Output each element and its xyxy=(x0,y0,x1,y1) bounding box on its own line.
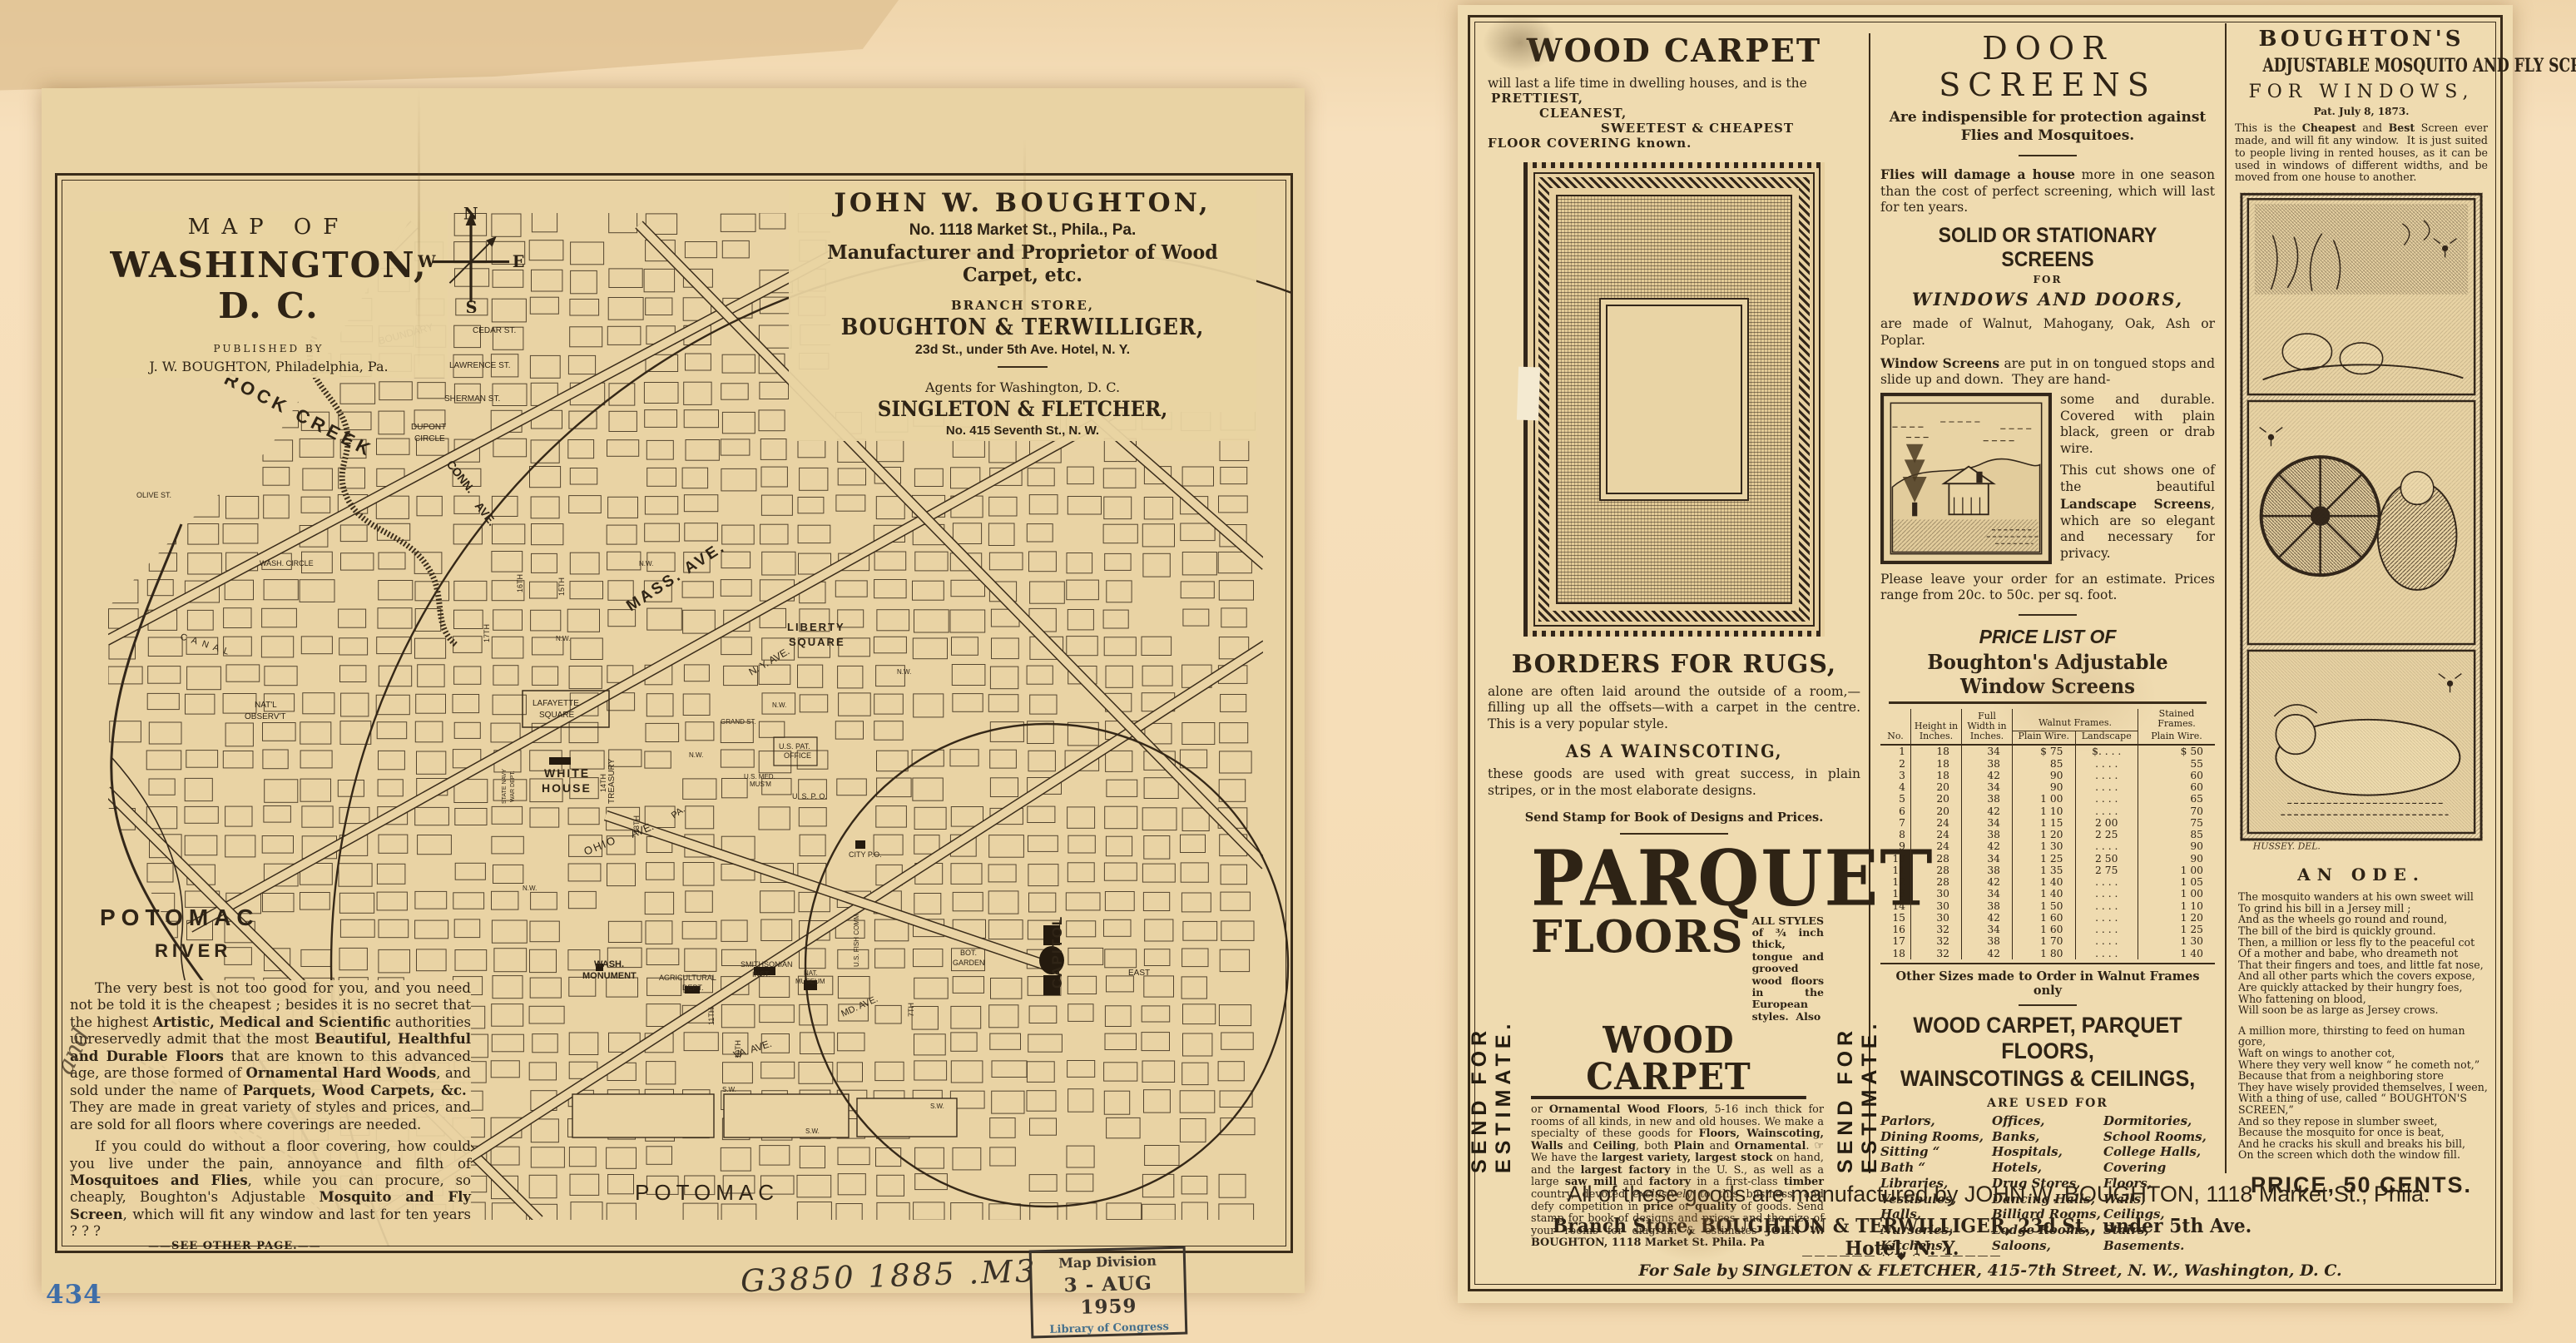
used-for-item: Banks, xyxy=(1992,1129,2103,1145)
library-stamp: Map Division 3 - AUG 1959 Library of Con… xyxy=(1029,1246,1188,1339)
window-screens-paragraph: Window Screens are put in on tongued sto… xyxy=(1880,355,2215,389)
send-for-estimate-left: SEND FOR ESTIMATE. xyxy=(1468,864,1516,1173)
price-table-cell: 2 xyxy=(1880,758,1911,770)
map-title-city: WASHINGTON, D. C. xyxy=(90,245,448,326)
compass-s: S xyxy=(466,298,478,313)
price-table-cell: 1 00 xyxy=(2138,888,2216,899)
published-by-label: PUBLISHED BY xyxy=(90,343,448,354)
advert-paragraph-1: The very best is not too good for you, a… xyxy=(70,980,471,1133)
used-for-item: School Rooms, xyxy=(2103,1129,2215,1145)
stamp-date: 3 - AUG 1959 xyxy=(1032,1271,1184,1321)
price-table-cell: 1 60 xyxy=(2013,912,2076,924)
price-table-cell: 1 20 xyxy=(2138,912,2216,924)
advert-paragraph-2: If you could do without a floor covering… xyxy=(70,1138,471,1241)
price-table-cell: 38 xyxy=(1962,758,2013,770)
price-table-cell: 1 30 xyxy=(2138,935,2216,947)
handsome-durable-text: some and durable. Covered with plain bla… xyxy=(2060,392,2215,458)
price-table-cell: . . . . xyxy=(2075,781,2138,793)
map-label: POTOMAC xyxy=(100,904,260,930)
price-table-cell: 38 xyxy=(1962,935,2013,947)
price-table-cell: 90 xyxy=(2138,840,2216,852)
map-label: S.W. xyxy=(805,1127,820,1135)
advert-paragraphs: The very best is not too good for you, a… xyxy=(70,980,471,1246)
see-other-page-note: ——SEE OTHER PAGE.—— xyxy=(148,1240,321,1252)
used-for-item: Bath “ xyxy=(1880,1160,1992,1176)
ode-line: A million more, thirsting to feed on hum… xyxy=(2238,1025,2488,1048)
price-table-cell: 60 xyxy=(2138,781,2216,793)
used-heading-2: WAINSCOTINGS & CEILINGS, xyxy=(1892,1066,2203,1092)
price-table-cell: . . . . xyxy=(2075,935,2138,947)
price-table-cell: 10 xyxy=(1880,853,1911,865)
map-label: OBSERV'T xyxy=(245,712,286,721)
used-for-item: Dormitories, xyxy=(2103,1113,2215,1129)
map-label: N.W. xyxy=(689,751,703,759)
landscape-screen-text: some and durable. Covered with plain bla… xyxy=(2060,392,2215,565)
wainscoting-heading: AS A WAINSCOTING, xyxy=(1503,741,1845,761)
map-label: 17TH xyxy=(483,624,491,642)
map-label: N.W. xyxy=(897,668,911,676)
scanned-sheet: ROCK CREEKBOUNDARYCEDAR ST.LAWRENCE ST.S… xyxy=(0,0,2576,1343)
map-label: WASH. CIRCLE xyxy=(260,559,314,567)
door-screens-column: DOOR SCREENS Are indispensible for prote… xyxy=(1880,23,2215,1254)
map-label: PA. xyxy=(670,805,687,821)
map-label: INST. xyxy=(752,970,770,979)
col-width: Full Width in Inches. xyxy=(1962,709,2013,746)
price-table-cell: 1 25 xyxy=(2138,924,2216,935)
footer-ornament: —————— ·· ◆ ·· —————— xyxy=(1528,1250,2276,1262)
price-table-cell: 42 xyxy=(1962,770,2013,781)
ode-line: And so they repose in slumber sweet, xyxy=(2238,1116,2488,1127)
price-table-cell: . . . . xyxy=(2075,948,2138,959)
price-table-cell: 38 xyxy=(1962,865,2013,876)
used-for-item: Offices, xyxy=(1992,1113,2103,1129)
price-table-body: 11834$ 75$. . . .$ 502183885. . . .55318… xyxy=(1880,745,2215,959)
ode-line: Will soon be as large as Jersey crows. xyxy=(2238,1004,2488,1016)
price-table-cell: 1 30 xyxy=(2013,840,2076,852)
rug-centre-panel xyxy=(1599,298,1750,502)
price-table-row: 1028341 252 5090 xyxy=(1880,853,2215,865)
compass-w: W xyxy=(418,252,436,271)
map-label: LIBERTY xyxy=(787,621,845,633)
price-table-cell: 1 25 xyxy=(2013,853,2076,865)
map-label: GRAND ST. xyxy=(721,718,756,726)
map-label: DEPT. xyxy=(682,984,704,992)
price-table-cell: 30 xyxy=(1911,888,1962,899)
map-label: CONN. xyxy=(444,458,478,495)
price-table-row: 924421 30. . . .90 xyxy=(1880,840,2215,852)
ode-stanza-2: A million more, thirsting to feed on hum… xyxy=(2238,1025,2488,1161)
screen-intro-paragraph: This is the Cheapest and Best Screen eve… xyxy=(2235,122,2488,184)
map-title-block: MAP OF WASHINGTON, D. C. PUBLISHED BY J.… xyxy=(90,211,448,378)
price-table-row: 1530421 60. . . .1 20 xyxy=(1880,912,2215,924)
price-table-cell: 85 xyxy=(2013,758,2076,770)
price-table-cell: 18 xyxy=(1911,770,1962,781)
map-label: HOUSE xyxy=(542,781,592,795)
price-table-cell: 90 xyxy=(2138,853,2216,865)
made-of-paragraph: are made of Walnut, Mahogany, Oak, Ash o… xyxy=(1880,316,2215,349)
price-table-cell: 1 00 xyxy=(2138,865,2216,876)
price-table-cell: 17 xyxy=(1880,935,1911,947)
windows-doors-heading: WINDOWS AND DOORS, xyxy=(1880,289,2215,310)
used-heading-1: WOOD CARPET, PARQUET FLOORS, xyxy=(1892,1013,2203,1064)
price-table-cell: 1 15 xyxy=(2013,817,2076,829)
price-table-cell: 34 xyxy=(1962,745,2013,757)
price-table-cell: 1 10 xyxy=(2013,805,2076,817)
agents-name: SINGLETON & FLETCHER, xyxy=(807,397,1237,421)
map-label: NAT. xyxy=(804,969,818,977)
ode-line: With a thing of use, called “ BOUGHTON'S… xyxy=(2238,1093,2488,1115)
price-table-cell: 28 xyxy=(1911,853,1962,865)
for-windows-heading: FOR WINDOWS, xyxy=(2235,82,2488,102)
price-table-cell: 1 80 xyxy=(2013,948,2076,959)
price-table-row: 1430381 50. . . .1 10 xyxy=(1880,900,2215,912)
map-label: 13TH xyxy=(632,815,641,834)
mosquito-screens-column: BOUGHTON'S ADJUSTABLE MOSQUITO AND FLY S… xyxy=(2235,20,2488,1198)
wainscoting-paragraph: these goods are used with great success,… xyxy=(1488,766,1860,799)
map-label: RIVER xyxy=(155,940,231,961)
col-plain-wire: Plain Wire. xyxy=(2013,731,2076,746)
for-label: FOR xyxy=(1880,274,2215,285)
price-table-cell: . . . . xyxy=(2075,876,2138,888)
stamp-library: Library of Congress xyxy=(1033,1321,1185,1337)
parquet-heading: PARQUET xyxy=(1531,843,1824,915)
dealer-block: JOHN W. BOUGHTON, No. 1118 Market St., P… xyxy=(789,185,1256,441)
price-table-cell: 75 xyxy=(2138,817,2216,829)
branch-store-name: BOUGHTON & TERWILLIGER, xyxy=(812,315,1233,340)
dealer-name: JOHN W. BOUGHTON, xyxy=(789,188,1256,218)
col-height: Height in Inches. xyxy=(1911,709,1962,746)
paper-chip xyxy=(1517,367,1540,421)
map-label: AGRICULTURAL xyxy=(659,974,716,982)
map-label: N. Y. AVE. xyxy=(747,645,792,677)
map-label: SMITHSONIAN xyxy=(741,960,793,969)
compass-e: E xyxy=(513,252,524,271)
price-list-subtitle: Boughton's Adjustable Window Screens xyxy=(1889,650,2207,704)
price-table-cell: $ 75 xyxy=(2013,745,2076,757)
ode-line: Who fattening on blood, xyxy=(2238,994,2488,1005)
price-table-cell: 1 40 xyxy=(2013,876,2076,888)
price-table-cell: 24 xyxy=(1911,829,1962,840)
ode-line: Then, a million or less fly to the peace… xyxy=(2238,937,2488,949)
price-table-cell: 38 xyxy=(1962,829,2013,840)
price-table-cell: . . . . xyxy=(2075,912,2138,924)
engraving-credit: HUSSEY. DEL. xyxy=(2252,841,2321,852)
agents-address: No. 415 Seventh St., N. W. xyxy=(789,424,1256,438)
map-label: MONUMENT xyxy=(582,971,637,981)
ode-line: Where they very well know “ he cometh no… xyxy=(2238,1059,2488,1071)
col-landscape: Landscape xyxy=(2075,731,2138,746)
map-label: SQUARE xyxy=(789,636,845,648)
price-table-cell: 4 xyxy=(1880,781,1911,793)
price-table-cell: 34 xyxy=(1962,817,2013,829)
map-label: WAR DEPT. xyxy=(510,771,516,802)
price-table-cell: 5 xyxy=(1880,793,1911,805)
map-label: SQUARE xyxy=(539,711,575,720)
price-table-row: 1330341 40. . . .1 00 xyxy=(1880,888,2215,899)
used-for-item: College Halls, xyxy=(2103,1144,2215,1160)
price-table-cell: 20 xyxy=(1911,805,1962,817)
price-table-cell: 2 00 xyxy=(2075,817,2138,829)
price-table-cell: 1 40 xyxy=(2138,948,2216,959)
used-for-item: Dining Rooms, xyxy=(1880,1129,1992,1145)
map-label: N.W. xyxy=(639,560,653,567)
price-table-cell: 20 xyxy=(1911,793,1962,805)
map-label: SHERMAN ST. xyxy=(444,394,500,404)
map-label: OFFICE xyxy=(784,751,811,760)
price-table-cell: 60 xyxy=(2138,770,2216,781)
map-label: U. S. P. O. xyxy=(792,792,827,800)
compass-rose-icon: N S W E xyxy=(418,206,524,313)
floors-row: FLOORS ALL STYLES of ¾ inch thick, tongu… xyxy=(1531,915,1824,1023)
price-table-cell: 1 20 xyxy=(2013,829,2076,840)
price-table-cell: 20 xyxy=(1911,781,1962,793)
ode-line: The mosquito wanders at his own sweet wi… xyxy=(2238,891,2488,903)
price-table-cell: 1 35 xyxy=(2013,865,2076,876)
price-table-cell: 24 xyxy=(1911,840,1962,852)
door-screens-subhead-1: Are indispensible for protection against xyxy=(1880,108,2215,126)
branch-store-label: BRANCH STORE, xyxy=(789,298,1256,313)
map-label: OLIVE ST. xyxy=(136,491,171,499)
price-table-cell: . . . . xyxy=(2075,770,2138,781)
price-table-cell: 12 xyxy=(1880,876,1911,888)
used-for-item: Parlors, xyxy=(1880,1113,1992,1129)
price-table-cell: 38 xyxy=(1962,793,2013,805)
price-table-cell: 18 xyxy=(1911,758,1962,770)
cut-shows-text: This cut shows one of the beautiful Land… xyxy=(2060,463,2215,562)
advert-page: WOOD CARPET will last a life time in dwe… xyxy=(1458,5,2513,1303)
map-label: POTOMAC xyxy=(635,1180,779,1205)
column-rule-2 xyxy=(2225,23,2227,1173)
map-label: NAT'L xyxy=(255,701,277,710)
price-list-table: No. Height in Inches. Full Width in Inch… xyxy=(1880,709,2215,959)
ode-line: Because the mosquito for once is beat, xyxy=(2238,1127,2488,1138)
map-label: 7TH xyxy=(907,1003,915,1017)
price-table-cell: $ 50 xyxy=(2138,745,2216,757)
adjustable-screens-heading: ADJUSTABLE MOSQUITO AND FLY SCREENS, xyxy=(2262,55,2460,77)
price-table-cell: 42 xyxy=(1962,948,2013,959)
dealer-divider xyxy=(998,366,1048,368)
price-table-cell: . . . . xyxy=(2075,758,2138,770)
price-table-cell: . . . . xyxy=(2075,888,2138,899)
wood-carpet-column: WOOD CARPET will last a life time in dwe… xyxy=(1488,23,1860,1250)
price-table-cell: 42 xyxy=(1962,840,2013,852)
price-table-cell: 11 xyxy=(1880,865,1911,876)
map-label: EAST xyxy=(1128,969,1150,978)
price-table-cell: 3 xyxy=(1880,770,1911,781)
price-table-row: 2183885. . . .55 xyxy=(1880,758,2215,770)
price-table-cell: 13 xyxy=(1880,888,1911,899)
map-title-line1: MAP OF xyxy=(90,215,448,240)
price-table-cell: 7 xyxy=(1880,817,1911,829)
ode-line: Waft on wings to another cot, xyxy=(2238,1048,2488,1059)
map-label: N.W. xyxy=(556,635,570,642)
price-table-cell: 32 xyxy=(1911,948,1962,959)
send-stamp-line: Send Stamp for Book of Designs and Price… xyxy=(1488,810,1860,825)
map-label: WASH. xyxy=(594,959,624,969)
map-label: CIRCLE xyxy=(414,434,445,444)
map-label: MASS. AVE. xyxy=(623,538,729,616)
price-table-cell: 90 xyxy=(2013,770,2076,781)
price-table-cell: 55 xyxy=(2138,758,2216,770)
are-used-for-label: ARE USED FOR xyxy=(1880,1097,2215,1110)
ode-line: Of a mother and babe, who dreameth not xyxy=(2238,948,2488,959)
price-table-cell: 1 05 xyxy=(2138,876,2216,888)
map-label: MUS'M xyxy=(750,781,771,788)
map-label: 15TH xyxy=(557,577,566,596)
ode-line: The bill of the bird is quickly ground. xyxy=(2238,925,2488,937)
map-label: GARDEN xyxy=(953,959,985,967)
price-list-title: PRICE LIST OF xyxy=(1880,626,2215,648)
price-table-cell: 1 60 xyxy=(2013,924,2076,935)
col-stained-plain: Plain Wire. xyxy=(2138,731,2216,746)
price-table-cell: $. . . . xyxy=(2075,745,2138,757)
price-table-cell: 34 xyxy=(1962,781,2013,793)
price-table-cell: 28 xyxy=(1911,876,1962,888)
mosquito-scenes-engraving: HUSSEY. DEL. xyxy=(2238,191,2484,856)
wood-carpet-heading: WOOD CARPET xyxy=(1488,32,1860,69)
map-label: 11TH xyxy=(707,1008,716,1025)
price-table-cell: . . . . xyxy=(2075,924,2138,935)
borders-paragraph: alone are often laid around the outside … xyxy=(1488,684,1860,732)
price-table-row: 4203490. . . .60 xyxy=(1880,781,2215,793)
map-label: CEDAR ST. xyxy=(473,326,516,335)
wood-carpet-display-heading: WOOD CARPET xyxy=(1531,1023,1806,1099)
price-table-cell: 1 10 xyxy=(2138,900,2216,912)
map-label: U.S. MED. xyxy=(744,773,775,781)
price-table-cell: 2 75 xyxy=(2075,865,2138,876)
map-label: ROCK CREEK xyxy=(221,368,378,461)
ode-line: To grind his bill in a Jersey mill ; xyxy=(2238,903,2488,914)
map-label: BOT. xyxy=(960,949,977,957)
landscape-screen-engraving xyxy=(1880,392,2052,565)
paper-crease xyxy=(1023,138,1026,354)
map-label: 16TH xyxy=(516,574,524,592)
price-table-row: 1832421 80. . . .1 40 xyxy=(1880,948,2215,959)
price-table-cell: 15 xyxy=(1880,912,1911,924)
dealer-address: No. 1118 Market St., Phila., Pa. xyxy=(789,221,1256,240)
price-table-cell: 90 xyxy=(2013,781,2076,793)
stamp-division: Map Division xyxy=(1032,1252,1183,1272)
price-table-cell: 42 xyxy=(1962,876,2013,888)
ode-line: Are quickly attacked by their hungry foe… xyxy=(2238,982,2488,994)
price-table-cell: 8 xyxy=(1880,829,1911,840)
price-table-cell: 1 00 xyxy=(2013,793,2076,805)
map-label: MUSEUM xyxy=(795,978,825,985)
col-walnut: Walnut Frames. xyxy=(2013,709,2138,731)
map-label: STATE NAVY xyxy=(502,769,508,804)
agents-label: Agents for Washington, D. C. xyxy=(789,379,1256,395)
branch-store-address: 23d St., under 5th Ave. Hotel, N. Y. xyxy=(789,343,1256,358)
map-label: CAPITOL xyxy=(1049,915,1065,989)
map-label: S.W. xyxy=(722,1086,736,1093)
price-table-cell: 32 xyxy=(1911,924,1962,935)
other-sizes-note: Other Sizes made to Order in Walnut Fram… xyxy=(1880,963,2215,998)
mini-divider xyxy=(2019,155,2077,156)
price-table-row: 824381 202 2585 xyxy=(1880,829,2215,840)
price-table-row: 724341 152 0075 xyxy=(1880,817,2215,829)
price-table-row: 1632341 60. . . .1 25 xyxy=(1880,924,2215,935)
col-no: No. xyxy=(1880,709,1911,746)
all-styles-note: ALL STYLES of ¾ inch thick, tongue and g… xyxy=(1752,915,1824,1023)
map-label: WHITE xyxy=(544,766,590,780)
dealer-occupation: Manufacturer and Proprietor of Wood Carp… xyxy=(798,241,1247,286)
price-table-cell: 2 25 xyxy=(2075,829,2138,840)
map-label: N.W. xyxy=(523,885,537,892)
background-band xyxy=(0,0,899,98)
price-table-cell: 1 50 xyxy=(2013,900,2076,912)
mini-divider xyxy=(2019,614,2077,616)
door-screens-heading: DOOR SCREENS xyxy=(1880,30,2215,103)
price-table-cell: 14 xyxy=(1880,900,1911,912)
map-label: LAWRENCE ST. xyxy=(449,361,511,370)
price-table-cell: 16 xyxy=(1880,924,1911,935)
price-table-row: 620421 10. . . .70 xyxy=(1880,805,2215,817)
price-table-row: 1128381 352 751 00 xyxy=(1880,865,2215,876)
price-table-row: 1732381 70. . . .1 30 xyxy=(1880,935,2215,947)
used-for-item: Hospitals, xyxy=(1992,1144,2103,1160)
ode-line: And all other parts which the covers exp… xyxy=(2238,970,2488,982)
price-table-cell: 9 xyxy=(1880,840,1911,852)
patent-date: Pat. July 8, 1873. xyxy=(2235,106,2488,117)
footer-manufactured-by: All of these goods are manufactured by J… xyxy=(1558,1182,2440,1207)
landscape-screen-figure-row: some and durable. Covered with plain bla… xyxy=(1880,392,2215,565)
used-for-item: Hotels, xyxy=(1992,1160,2103,1176)
price-table-cell: 1 xyxy=(1880,745,1911,757)
map-label: U.S. PAT. xyxy=(779,742,810,751)
ode-stanza-1: The mosquito wanders at his own sweet wi… xyxy=(2238,891,2488,1016)
price-table-cell: 42 xyxy=(1962,912,2013,924)
price-table-cell: 18 xyxy=(1911,745,1962,757)
price-table-cell: 70 xyxy=(2138,805,2216,817)
price-table-row: 11834$ 75$. . . .$ 50 xyxy=(1880,745,2215,757)
price-table-cell: 2 50 xyxy=(2075,853,2138,865)
order-paragraph: Please leave your order for an estimate.… xyxy=(1880,572,2215,604)
map-label: 10TH xyxy=(734,1040,742,1058)
door-screens-subhead-2: Flies and Mosquitoes. xyxy=(1880,126,2215,145)
map-label: OHIO xyxy=(582,833,619,857)
map-page: ROCK CREEKBOUNDARYCEDAR ST.LAWRENCE ST.S… xyxy=(42,88,1305,1293)
ode-title: AN ODE. xyxy=(2235,865,2488,885)
price-table-cell: 85 xyxy=(2138,829,2216,840)
stagger-prettiest: PRETTIEST, xyxy=(1491,91,1860,106)
price-table-cell: 1 40 xyxy=(2013,888,2076,899)
price-table-cell: 30 xyxy=(1911,912,1962,924)
price-table-cell: 6 xyxy=(1880,805,1911,817)
map-label: TREASURY xyxy=(607,758,617,804)
footer-for-sale-by: For Sale by SINGLETON & FLETCHER, 415-7t… xyxy=(1541,1261,2440,1280)
ode-line: That their fingers and toes, and little … xyxy=(2238,959,2488,971)
mini-divider xyxy=(2019,1004,2077,1006)
price-table-cell: 34 xyxy=(1962,888,2013,899)
map-label: N.W. xyxy=(772,701,786,709)
compass-n: N xyxy=(463,206,478,223)
stagger-sweetest: SWEETEST & CHEAPEST xyxy=(1601,121,1860,136)
map-label: 14TH xyxy=(599,774,607,792)
used-for-item: Sitting “ xyxy=(1880,1144,1992,1160)
price-table-cell: . . . . xyxy=(2075,805,2138,817)
ode-line: On the screen which doth the window fill… xyxy=(2238,1149,2488,1161)
price-table-row: 1228421 40. . . .1 05 xyxy=(1880,876,2215,888)
price-table-cell: 28 xyxy=(1911,865,1962,876)
map-label: CITY P.O. xyxy=(849,850,882,859)
wood-carpet-intro: will last a life time in dwelling houses… xyxy=(1488,76,1860,91)
map-label: DUPONT xyxy=(411,423,446,432)
solid-screens-heading: SOLID OR STATIONARY SCREENS xyxy=(1894,224,2202,272)
price-table-cell: 18 xyxy=(1880,948,1911,959)
ode-line: Because that from a neighboring store xyxy=(2238,1070,2488,1082)
price-table-cell: 65 xyxy=(2138,793,2216,805)
price-table-cell: 24 xyxy=(1911,817,1962,829)
